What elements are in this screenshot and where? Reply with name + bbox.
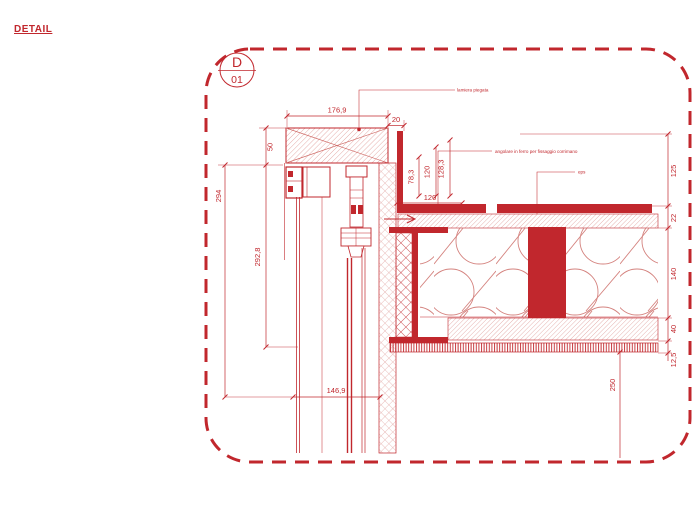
dim-layer-40: 40 [669,325,678,333]
callout-bent-sheet: lamiera piegata [457,88,489,93]
ceiling-board-layer [390,343,658,352]
dim-upstand-a: 78,3 [407,170,416,185]
dim-top-width: 176,9 [328,106,347,115]
detail-sheet: DETAIL [0,0,700,525]
edge-insulation-strip [396,233,412,337]
dim-layer-125: 125 [669,165,678,178]
eps-layer [398,214,658,228]
dim-glazing-height: 292,8 [253,248,262,267]
dim-upstand-b: 120 [423,166,432,179]
dim-layer-22: 22 [669,214,678,222]
marker-letter: D [232,54,242,70]
dim-top-offset: 20 [392,115,400,124]
steel-beam-top-flange [389,227,448,233]
roof-buildup [384,214,658,352]
iron-angle-leg [397,204,486,213]
bent-sheet-vertical [397,131,403,205]
callout-texts: lamiera piegata angolare in ferro per fi… [457,88,586,175]
dim-ledge-width: 120 [424,193,437,202]
support-block [528,227,566,318]
parapet-wall [379,163,396,453]
steel-beam-bottom-flange [389,337,448,343]
callout-iron-angle: angolare in ferro per fissaggio corriman… [495,149,578,154]
marker-number: 01 [231,74,243,86]
dim-layer-140: 140 [669,268,678,281]
dim-slab-drop: 250 [608,379,617,392]
dim-layer-12-5: 12,5 [669,353,678,368]
dim-bottom-width: 146,9 [327,386,346,395]
flashing-plate [497,204,652,213]
callout-eps: eps [578,170,586,175]
detail-drawing: D 01 [0,0,700,525]
screed-layer [448,318,658,340]
dim-upstand-c: 128,3 [437,160,446,179]
dim-beam-height: 50 [266,143,275,151]
mullion-profile [341,166,371,257]
dim-left-overall: 294 [214,190,223,203]
curtainwall-head [286,167,330,198]
head-beam [286,128,388,163]
steel-beam-web [412,233,418,337]
